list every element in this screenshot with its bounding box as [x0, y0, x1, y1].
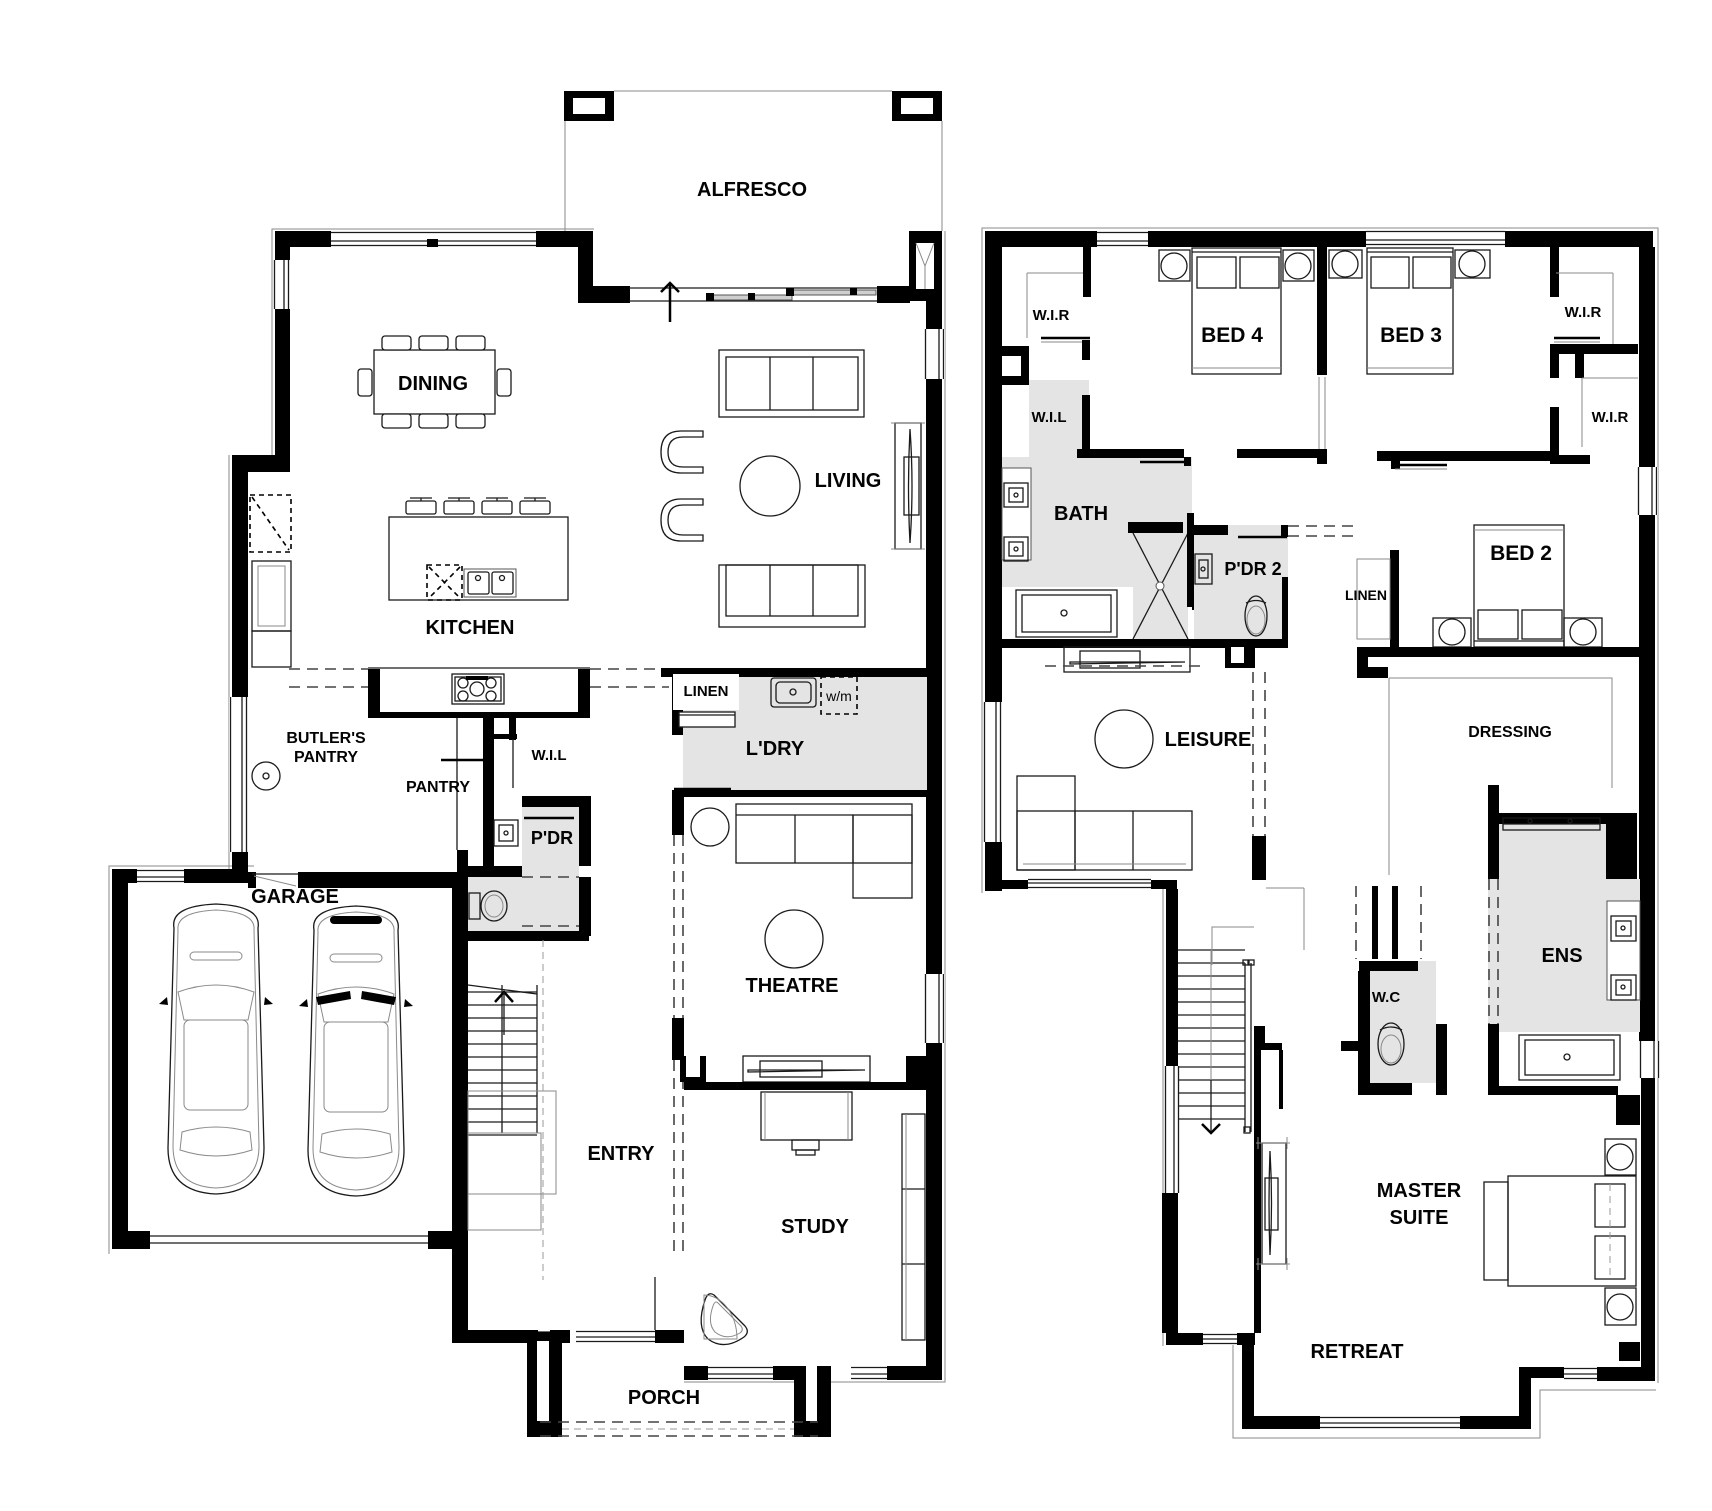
- svg-text:GARAGE: GARAGE: [251, 886, 339, 908]
- svg-text:W.I.L: W.I.L: [1032, 409, 1067, 426]
- svg-text:LIVING: LIVING: [815, 470, 882, 492]
- svg-text:W.I.R: W.I.R: [1033, 307, 1070, 324]
- svg-text:PANTRY: PANTRY: [406, 779, 470, 796]
- svg-text:SUITE: SUITE: [1390, 1207, 1449, 1229]
- svg-text:KITCHEN: KITCHEN: [426, 617, 515, 639]
- svg-text:LINEN: LINEN: [684, 683, 729, 700]
- svg-text:P'DR 2: P'DR 2: [1224, 559, 1281, 579]
- svg-text:W.I.R: W.I.R: [1565, 304, 1602, 321]
- svg-text:DRESSING: DRESSING: [1468, 724, 1552, 741]
- svg-text:BED 4: BED 4: [1201, 324, 1263, 347]
- svg-text:LEISURE: LEISURE: [1165, 729, 1252, 751]
- svg-text:PANTRY: PANTRY: [294, 749, 358, 766]
- svg-text:LINEN: LINEN: [1345, 587, 1387, 603]
- svg-text:w/m: w/m: [825, 688, 852, 704]
- svg-text:PORCH: PORCH: [628, 1387, 700, 1409]
- svg-text:ENTRY: ENTRY: [587, 1143, 655, 1165]
- svg-text:P'DR: P'DR: [531, 828, 573, 848]
- svg-text:STUDY: STUDY: [781, 1216, 849, 1238]
- svg-text:RETREAT: RETREAT: [1311, 1341, 1404, 1363]
- svg-text:W.C: W.C: [1372, 989, 1400, 1006]
- svg-text:BUTLER'S: BUTLER'S: [286, 730, 366, 747]
- svg-text:W.I.L: W.I.L: [532, 747, 567, 764]
- svg-text:MASTER: MASTER: [1377, 1180, 1462, 1202]
- svg-text:BED 2: BED 2: [1490, 542, 1552, 565]
- svg-text:THEATRE: THEATRE: [746, 975, 839, 997]
- svg-text:W.I.R: W.I.R: [1592, 409, 1629, 426]
- svg-text:BATH: BATH: [1054, 503, 1108, 525]
- svg-text:ENS: ENS: [1541, 945, 1582, 967]
- svg-text:ALFRESCO: ALFRESCO: [697, 179, 807, 201]
- svg-text:L'DRY: L'DRY: [746, 738, 805, 760]
- svg-text:BED 3: BED 3: [1380, 324, 1442, 347]
- svg-text:DINING: DINING: [398, 373, 468, 395]
